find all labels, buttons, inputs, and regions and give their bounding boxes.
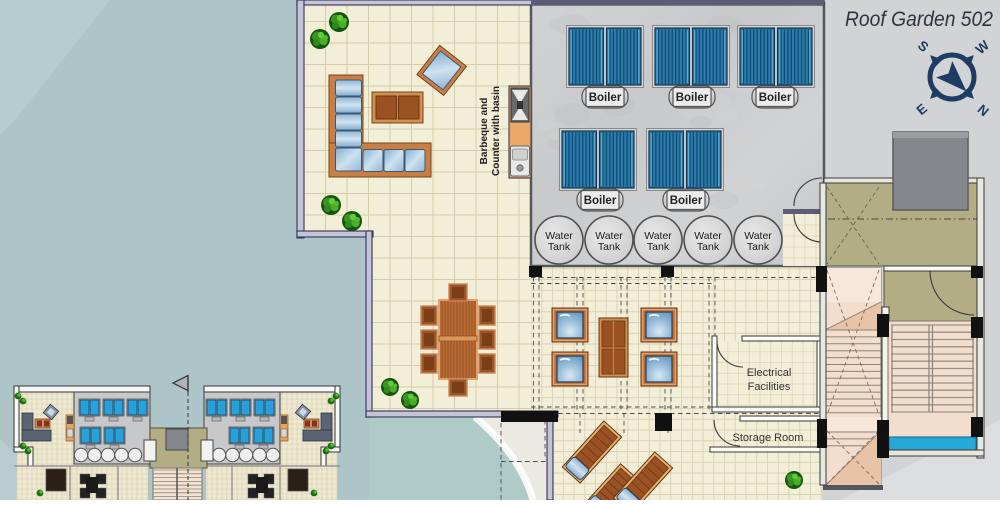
svg-text:Facilities: Facilities <box>748 381 791 393</box>
svg-text:Boiler: Boiler <box>589 92 622 104</box>
svg-text:Tank: Tank <box>548 241 571 253</box>
svg-text:Boiler: Boiler <box>584 195 617 207</box>
svg-text:Tank: Tank <box>697 241 720 253</box>
svg-text:Storage Room: Storage Room <box>733 432 804 444</box>
svg-text:Tank: Tank <box>647 241 670 253</box>
svg-text:Electrical: Electrical <box>747 367 792 379</box>
svg-text:Tank: Tank <box>598 241 621 253</box>
svg-text:Barbeque and: Barbeque and <box>479 98 490 165</box>
svg-text:Roof Garden 502: Roof Garden 502 <box>845 7 993 31</box>
svg-text:Boiler: Boiler <box>676 92 709 104</box>
svg-text:Boiler: Boiler <box>759 92 792 104</box>
svg-text:Boiler: Boiler <box>670 195 703 207</box>
svg-text:Counter with basin: Counter with basin <box>491 86 502 176</box>
svg-text:Tank: Tank <box>747 241 770 253</box>
